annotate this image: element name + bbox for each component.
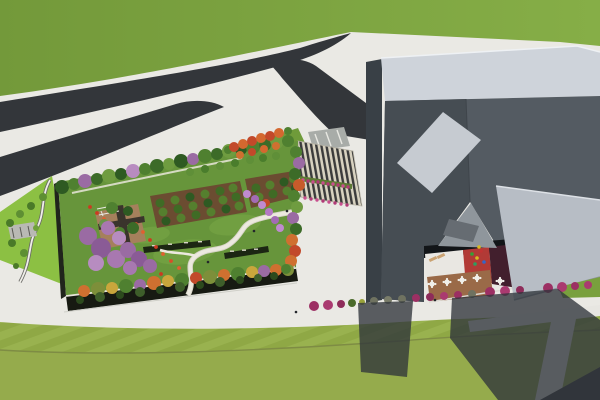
- shrub: [348, 299, 356, 307]
- render-canvas: [0, 0, 600, 400]
- bush: [39, 193, 47, 201]
- pink-flower: [316, 180, 319, 183]
- cafe-table: [444, 279, 449, 284]
- tree: [216, 162, 224, 170]
- pink-flower: [321, 181, 324, 184]
- person: [253, 230, 256, 233]
- pink-flower: [346, 185, 349, 188]
- berm-tree: [229, 142, 239, 152]
- pink-flower: [331, 182, 334, 185]
- bush: [33, 225, 39, 231]
- cafe-table: [464, 279, 466, 281]
- shrub: [323, 300, 333, 310]
- pink-flower: [326, 182, 329, 185]
- orchard-tree: [156, 199, 165, 208]
- tree: [231, 159, 239, 167]
- cafe-table: [499, 277, 501, 279]
- berm-tree: [256, 133, 266, 143]
- striped-entry-plaza: [298, 141, 362, 206]
- person: [207, 261, 210, 264]
- play-item: [475, 256, 479, 260]
- shrub: [426, 293, 434, 301]
- bush: [254, 274, 262, 282]
- shrub: [584, 281, 592, 289]
- bush: [8, 239, 16, 247]
- cafe-table: [476, 274, 478, 276]
- red-flower: [154, 245, 158, 249]
- bush: [27, 202, 35, 210]
- tree: [139, 163, 151, 175]
- orchard-tree: [159, 208, 168, 217]
- berm-tree: [274, 128, 284, 138]
- tree: [119, 279, 133, 293]
- play-item: [477, 245, 481, 249]
- tree: [290, 223, 302, 235]
- orchard-tree: [162, 217, 171, 226]
- berm-tree: [238, 139, 248, 149]
- tree: [287, 212, 299, 224]
- orchard-tree: [219, 196, 228, 205]
- tree: [293, 179, 305, 191]
- tree: [78, 285, 90, 297]
- bush: [196, 281, 204, 289]
- cafe-table: [446, 284, 448, 286]
- play-item: [482, 260, 486, 264]
- tree: [286, 234, 298, 246]
- bush: [156, 286, 164, 294]
- pink-flower: [336, 183, 339, 186]
- bush: [116, 291, 124, 299]
- pink-flower: [306, 179, 309, 182]
- tree: [187, 153, 199, 165]
- bush: [16, 210, 24, 218]
- person: [434, 299, 437, 302]
- pink-flower: [311, 180, 314, 183]
- blossom-tree: [276, 224, 284, 232]
- blossom-tree: [251, 195, 259, 203]
- bush: [95, 292, 105, 302]
- berm-tree: [284, 127, 292, 135]
- tree: [102, 169, 116, 183]
- pink-flower: [309, 197, 312, 200]
- red-flower: [141, 230, 145, 234]
- blossom-tree: [265, 208, 273, 216]
- orchard-tree: [192, 211, 201, 220]
- bush: [270, 272, 278, 280]
- tree: [115, 168, 127, 180]
- tree: [198, 149, 212, 163]
- berm-tree: [260, 145, 268, 153]
- purple-tree: [101, 221, 115, 235]
- tree: [150, 159, 164, 173]
- cafe-table: [474, 275, 479, 280]
- blossom-tree: [258, 201, 266, 209]
- shrub: [412, 294, 420, 302]
- tree: [163, 158, 175, 170]
- bush: [175, 282, 185, 292]
- tree: [162, 275, 174, 287]
- tree: [291, 201, 303, 213]
- orchard-tree: [252, 184, 261, 193]
- tree: [201, 165, 209, 173]
- orchard-tree: [204, 199, 213, 208]
- orchard-tree: [216, 187, 225, 196]
- orchard-tree: [177, 214, 186, 223]
- bush: [6, 219, 14, 227]
- blossom-tree: [271, 216, 279, 224]
- cafe-table: [446, 278, 448, 280]
- pink-flower: [333, 201, 336, 204]
- aerial-render: [0, 0, 600, 400]
- orchard-tree: [229, 184, 238, 193]
- person: [286, 210, 289, 213]
- purple-tree: [123, 261, 137, 275]
- orchard-tree: [235, 202, 244, 211]
- pink-flower: [341, 184, 344, 187]
- orchard-tree: [232, 193, 241, 202]
- red-flower: [169, 259, 173, 263]
- tree: [126, 164, 140, 178]
- blossom-tree: [243, 190, 251, 198]
- orchard-tree: [174, 205, 183, 214]
- berm-tree: [272, 142, 280, 150]
- tree: [203, 270, 217, 284]
- cafe-table: [476, 280, 478, 282]
- deck-tree: [123, 206, 133, 216]
- cafe-table: [443, 281, 445, 283]
- cafe-table: [496, 280, 498, 282]
- tree: [246, 156, 254, 164]
- shrub: [571, 282, 579, 290]
- orchard-tree: [222, 205, 231, 214]
- tree: [290, 146, 302, 158]
- cafe-table: [449, 281, 451, 283]
- orchard-tree: [269, 190, 278, 199]
- shrub: [337, 300, 345, 308]
- cafe-table: [499, 283, 501, 285]
- bush: [215, 277, 225, 287]
- bush: [135, 287, 145, 297]
- tree: [259, 154, 267, 162]
- tree: [186, 168, 194, 176]
- berm-tree: [265, 131, 275, 141]
- cafe-table: [429, 281, 434, 286]
- bush: [236, 276, 244, 284]
- deck-tree: [106, 202, 118, 214]
- red-flower: [177, 266, 181, 270]
- cafe-table: [497, 278, 502, 283]
- orchard-tree: [207, 208, 216, 217]
- cafe-table: [459, 277, 464, 282]
- cafe-table: [479, 277, 481, 279]
- orchard-tree: [186, 193, 195, 202]
- bush: [13, 263, 19, 269]
- red-flower: [88, 205, 92, 209]
- cafe-table: [431, 280, 433, 282]
- berm-tree: [236, 151, 244, 159]
- tree: [78, 174, 92, 188]
- cafe-table: [434, 283, 436, 285]
- cafe-table: [473, 277, 475, 279]
- museum-left-face: [366, 59, 382, 303]
- purple-tree: [143, 259, 157, 273]
- bush: [20, 249, 28, 257]
- tree: [55, 180, 69, 194]
- shrub: [309, 301, 319, 311]
- building-shadow-left: [358, 301, 413, 377]
- deck-tree: [127, 222, 139, 234]
- tree: [293, 157, 305, 169]
- shrub: [440, 292, 448, 300]
- bush: [76, 296, 84, 304]
- tree: [106, 282, 118, 294]
- orchard-tree: [280, 178, 289, 187]
- red-flower: [148, 238, 152, 242]
- tree: [281, 264, 291, 274]
- play-item: [470, 252, 474, 256]
- berm-tree: [247, 136, 257, 146]
- tree: [288, 190, 300, 202]
- cafe-table: [461, 276, 463, 278]
- pink-flower: [315, 198, 318, 201]
- orchard-tree: [171, 196, 180, 205]
- orchard-tree: [201, 190, 210, 199]
- purple-tree: [88, 255, 104, 271]
- pink-flower: [345, 203, 348, 206]
- person: [295, 311, 298, 314]
- pink-flower: [321, 199, 324, 202]
- cafe-table: [502, 280, 504, 282]
- pink-flower: [303, 196, 306, 199]
- play-item: [473, 262, 477, 266]
- cafe-table: [428, 283, 430, 285]
- tree: [174, 154, 188, 168]
- tree: [282, 135, 294, 147]
- orchard-tree: [266, 181, 275, 190]
- cafe-table: [461, 282, 463, 284]
- berm-tree: [248, 148, 256, 156]
- tree: [211, 148, 223, 160]
- tree: [272, 152, 280, 160]
- play-item: [479, 249, 483, 253]
- red-flower: [159, 272, 163, 276]
- red-flower: [161, 252, 165, 256]
- cafe-table: [458, 279, 460, 281]
- orchard-tree: [189, 202, 198, 211]
- pink-flower: [339, 202, 342, 205]
- red-flower: [95, 211, 99, 215]
- tree: [91, 173, 103, 185]
- cafe-table: [431, 286, 433, 288]
- tree: [289, 168, 301, 180]
- pink-flower: [327, 200, 330, 203]
- purple-tree: [112, 231, 126, 245]
